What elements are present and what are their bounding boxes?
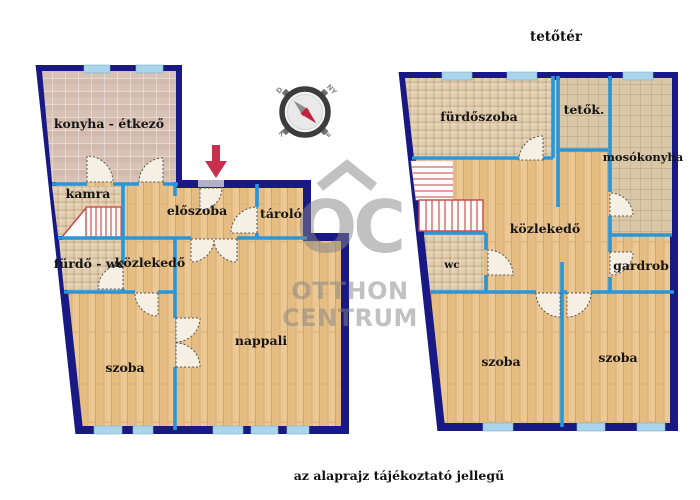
room-label-szoba-attic-right: szoba — [598, 350, 637, 365]
room-label-szoba-ground: szoba — [105, 360, 144, 375]
room-label-wc: wc — [443, 259, 459, 271]
caption: az alaprajz tájékoztató jellegű — [294, 468, 504, 483]
entrance-lintel — [198, 180, 224, 187]
room-label-eloszoba: előszoba — [167, 203, 227, 218]
attic-title: tetőtér — [530, 29, 583, 45]
room-label-kamra: kamra — [66, 186, 111, 201]
compass-label-west: NY — [325, 83, 339, 97]
room-label-kozlekedo-attic: közlekedő — [510, 221, 581, 236]
entrance-arrow — [205, 145, 227, 178]
room-label-konyha: konyha - étkező — [54, 116, 164, 131]
compass-rose: D NY K É — [275, 83, 339, 139]
room-label-tetok: tetők. — [564, 102, 605, 117]
floorplan-drawing: konyha - étkező kamra előszoba tároló fü… — [0, 0, 700, 500]
room-label-szoba-attic-left: szoba — [481, 354, 520, 369]
room-label-gardrob: gardrob — [613, 258, 669, 273]
floorplan-page: konyha - étkező kamra előszoba tároló fü… — [0, 0, 700, 500]
room-label-mosokonyha: mosókonyha — [603, 150, 684, 164]
room-label-furdoszoba: fürdőszoba — [440, 109, 517, 124]
watermark-logo: OC OTTHON CENTRUM — [282, 166, 418, 333]
logo-monogram: OC — [296, 185, 402, 269]
attic-floor-plan: tetőtér — [403, 29, 684, 431]
room-label-nappali: nappali — [235, 333, 288, 348]
room-label-kozlekedo-ground: közlekedő — [115, 255, 186, 270]
logo-line2: CENTRUM — [282, 304, 418, 332]
logo-roof-icon — [320, 166, 374, 188]
logo-line1: OTTHON — [291, 277, 408, 305]
